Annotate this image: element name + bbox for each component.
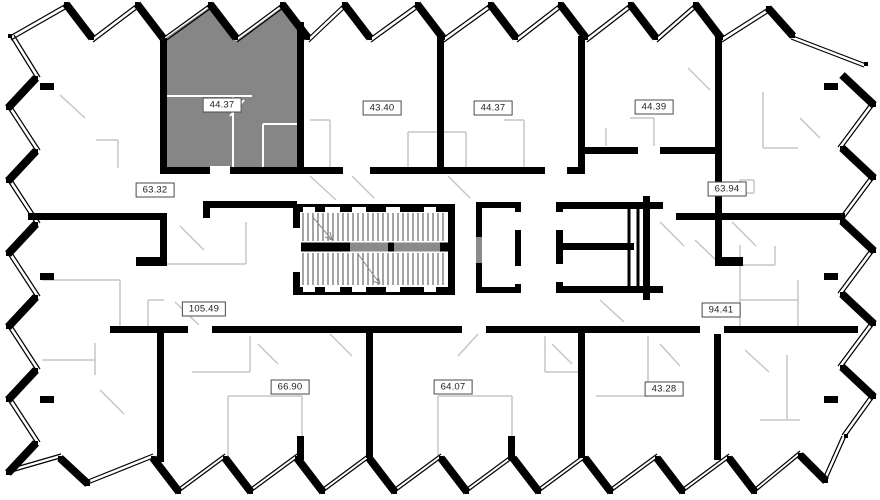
unit-area-label[interactable]: 63.32 — [136, 183, 175, 198]
unit-area-label[interactable]: 63.94 — [708, 182, 747, 197]
unit-area-label[interactable]: 43.28 — [645, 382, 684, 397]
unit-area-label[interactable]: 105.49 — [182, 302, 226, 317]
unit-area-label[interactable]: 44.39 — [635, 100, 674, 115]
unit-area-label[interactable]: 43.40 — [363, 101, 402, 116]
unit-area-label[interactable]: 44.37 — [474, 101, 513, 116]
floor-plan-viewport: 44.37 43.40 44.37 44.39 63.32 63.94 105.… — [0, 0, 880, 500]
unit-area-label[interactable]: 66.90 — [271, 380, 310, 395]
unit-area-label[interactable]: 64.07 — [434, 380, 473, 395]
unit-area-label[interactable]: 44.37 — [203, 98, 242, 113]
floor-plan — [0, 0, 880, 500]
unit-area-label[interactable]: 94.41 — [702, 303, 741, 318]
